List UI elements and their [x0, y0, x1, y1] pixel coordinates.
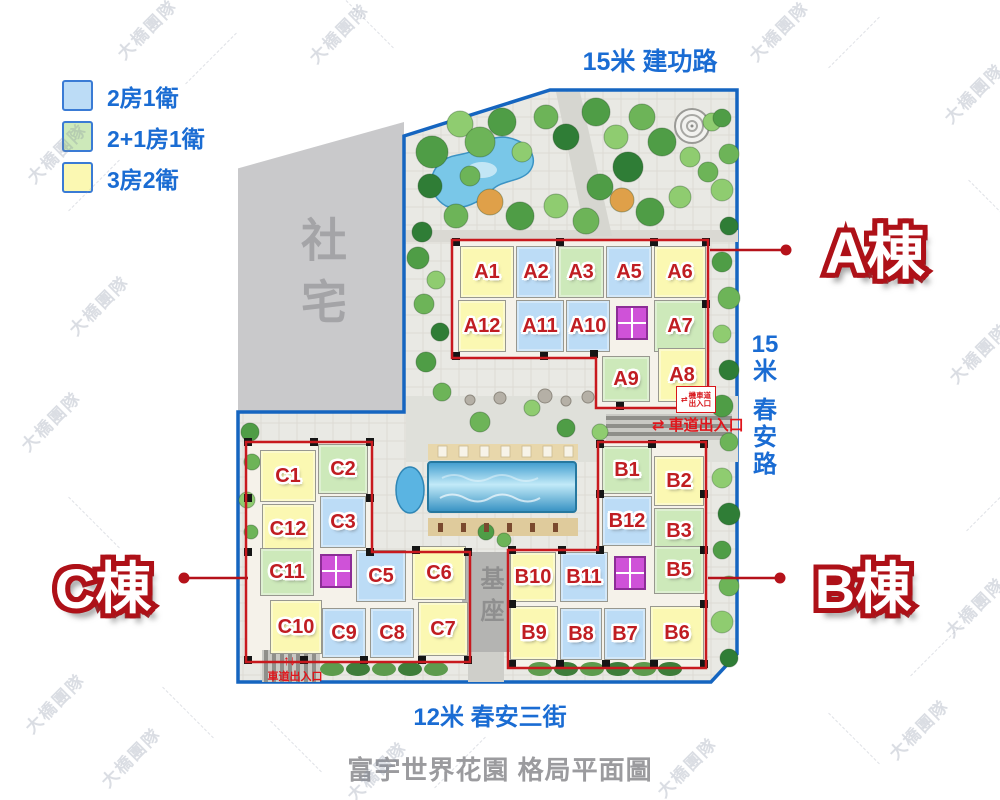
column-marker — [616, 402, 624, 410]
unit-c3: C3 — [320, 496, 366, 548]
column-marker — [700, 546, 708, 554]
unit-c5: C5 — [356, 550, 406, 602]
unit-b12: B12 — [602, 496, 652, 546]
legend-swatch-3b2b — [62, 162, 93, 193]
column-marker — [508, 600, 516, 608]
column-marker — [596, 490, 604, 498]
unit-a9: A9 — [602, 356, 650, 402]
unit-label: C12 — [270, 518, 307, 541]
unit-label: B8 — [568, 623, 594, 646]
arrows-icon: ⇄ — [681, 395, 688, 404]
unit-c12: C12 — [262, 504, 314, 554]
unit-b10: B10 — [510, 552, 556, 602]
column-marker — [464, 548, 472, 556]
arrows-icon: ↑↓ — [283, 652, 295, 668]
unit-a5: A5 — [606, 246, 652, 298]
legend-label: 2房1衛 — [107, 79, 179, 113]
column-marker — [360, 656, 368, 664]
unit-label: A5 — [616, 261, 642, 284]
building-label-b: B棟 — [788, 544, 938, 625]
unit-label: C1 — [275, 465, 301, 488]
unit-label: C10 — [278, 616, 315, 639]
column-marker — [452, 352, 460, 360]
unit-a7: A7 — [654, 300, 706, 352]
unit-label: C2 — [330, 458, 356, 481]
column-marker — [310, 438, 318, 446]
podium-label: 基座 — [472, 566, 507, 630]
unit-c2: C2 — [318, 444, 368, 494]
arrows-icon: ⇄ — [652, 416, 665, 434]
unit-c7: C7 — [418, 602, 468, 656]
legend-swatch-2p1b1b — [62, 121, 93, 152]
column-marker — [366, 438, 374, 446]
column-marker — [556, 660, 564, 668]
unit-label: A12 — [464, 315, 501, 338]
column-marker — [412, 546, 420, 554]
unit-c1: C1 — [260, 450, 316, 502]
unit-label: A1 — [474, 261, 500, 284]
column-marker — [648, 440, 656, 448]
legend-item-2p1b1b: 2+1房1衛 — [62, 121, 205, 152]
unit-label: B7 — [612, 623, 638, 646]
unit-label: B10 — [515, 566, 552, 589]
unit-label: C7 — [430, 618, 456, 641]
unit-a12: A12 — [458, 300, 506, 352]
elevator-core — [616, 306, 648, 340]
street-label-right-char: 米 — [749, 358, 781, 385]
column-marker — [596, 546, 604, 554]
unit-label: A3 — [568, 261, 594, 284]
unit-label: B5 — [666, 559, 692, 582]
column-marker — [244, 438, 252, 446]
column-marker — [244, 656, 252, 664]
motorcycle-entrance-line2: 出入口 — [689, 400, 712, 408]
unit-b8: B8 — [560, 608, 602, 660]
motorcycle-entrance-badge: ⇄ 機車道 出入口 — [676, 386, 716, 413]
column-marker — [540, 352, 548, 360]
unit-label: C6 — [426, 562, 452, 585]
column-marker — [418, 656, 426, 664]
unit-a6: A6 — [654, 246, 706, 298]
unit-a10: A10 — [566, 300, 610, 352]
unit-a2: A2 — [516, 246, 556, 298]
column-marker — [464, 656, 472, 664]
column-marker — [300, 656, 308, 664]
column-marker — [558, 546, 566, 554]
street-label-right-char: 春 — [749, 397, 781, 424]
unit-b11: B11 — [560, 552, 608, 602]
legend: 2房1衛 2+1房1衛 3房2衛 — [62, 80, 205, 203]
column-marker — [556, 238, 564, 246]
street-label-right: 15米春安路 — [749, 331, 781, 478]
unit-label: C11 — [269, 561, 305, 584]
legend-item-3b2b: 3房2衛 — [62, 162, 205, 193]
unit-a3: A3 — [558, 246, 604, 298]
column-marker — [508, 660, 516, 668]
column-marker — [702, 238, 710, 246]
unit-b2: B2 — [654, 456, 704, 506]
column-marker — [650, 238, 658, 246]
street-label-right-char: 15 — [749, 331, 781, 358]
page-title: 富宇世界花園 格局平面圖 — [290, 750, 710, 787]
street-label-bottom: 12米 春安三街 — [380, 697, 600, 732]
unit-label: B3 — [666, 520, 692, 543]
column-marker — [602, 660, 610, 668]
unit-label: A8 — [669, 364, 695, 387]
column-marker — [244, 548, 252, 556]
unit-label: C5 — [368, 565, 394, 588]
unit-label: C3 — [330, 511, 356, 534]
column-marker — [452, 238, 460, 246]
street-label-top: 15米 建功路 — [540, 42, 760, 78]
legend-label: 2+1房1衛 — [107, 120, 205, 154]
column-marker — [590, 350, 598, 358]
swimming-pool — [428, 462, 576, 512]
unit-label: A9 — [613, 368, 639, 391]
unit-label: B1 — [614, 459, 640, 482]
vehicle-entrance-label: 車道出入口 — [669, 414, 744, 435]
street-label-right-char: 路 — [749, 451, 781, 478]
unit-label: B2 — [666, 470, 692, 493]
column-marker — [366, 548, 374, 556]
unit-b6: B6 — [650, 606, 704, 660]
column-marker — [508, 546, 516, 554]
vehicle-entrance-right: ⇄ 車道出入口 — [652, 414, 744, 435]
unit-label: A6 — [667, 261, 693, 284]
unit-label: A10 — [570, 315, 607, 338]
column-marker — [700, 490, 708, 498]
unit-c10: C10 — [270, 600, 322, 654]
unit-b5: B5 — [654, 546, 704, 594]
unit-c6: C6 — [412, 546, 466, 600]
column-marker — [702, 300, 710, 308]
legend-swatch-2b1b — [62, 80, 93, 111]
unit-label: A7 — [667, 315, 693, 338]
street-label-right-char: 安 — [749, 424, 781, 451]
column-marker — [650, 660, 658, 668]
legend-label: 3房2衛 — [107, 161, 179, 195]
unit-a11: A11 — [516, 300, 564, 352]
column-marker — [366, 494, 374, 502]
unit-label: B9 — [521, 622, 547, 645]
unit-label: B12 — [609, 510, 646, 533]
unit-b9: B9 — [510, 606, 558, 660]
column-marker — [700, 660, 708, 668]
unit-a1: A1 — [460, 246, 514, 298]
unit-b7: B7 — [604, 608, 646, 660]
vehicle-entrance-bottom: 車道出入口 — [260, 668, 330, 684]
column-marker — [700, 440, 708, 448]
unit-label: C8 — [379, 622, 405, 645]
site-plan: 社宅 A1A2A3A5A6A12A11A10A7A9A8B1B2B12B3B10… — [0, 0, 1000, 800]
unit-c9: C9 — [322, 608, 366, 658]
column-marker — [700, 600, 708, 608]
elevator-core — [614, 556, 646, 590]
elevator-core — [320, 554, 352, 588]
unit-label: A11 — [522, 315, 558, 338]
unit-label: B11 — [566, 566, 602, 589]
unit-label: B6 — [664, 622, 690, 645]
legend-item-2b1b: 2房1衛 — [62, 80, 205, 111]
unit-b1: B1 — [602, 446, 652, 494]
column-marker — [596, 440, 604, 448]
water-slide — [396, 467, 424, 513]
column-marker — [244, 494, 252, 502]
unit-label: C9 — [331, 622, 357, 645]
building-label-c: C棟 — [28, 544, 178, 625]
unit-c8: C8 — [370, 608, 414, 658]
unit-c11: C11 — [260, 548, 314, 596]
building-label-a: A棟 — [800, 206, 950, 290]
unit-label: A2 — [523, 261, 549, 284]
